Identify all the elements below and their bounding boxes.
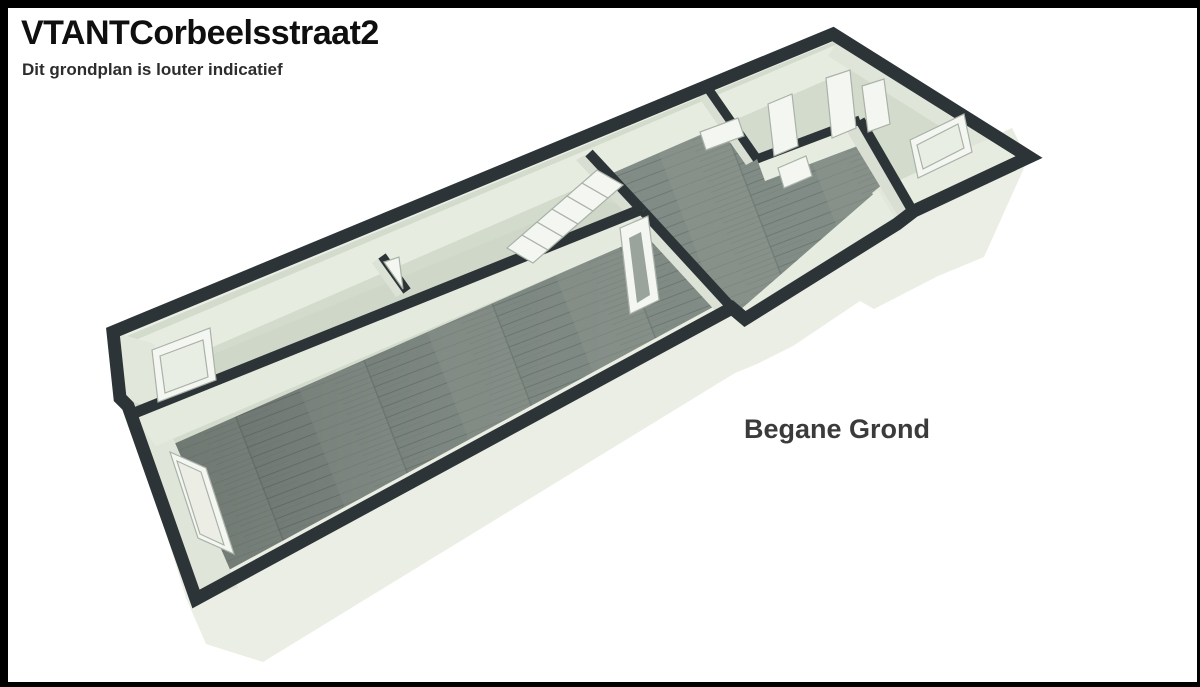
page-subtitle: Dit grondplan is louter indicatief — [22, 60, 283, 80]
floorplan-3d — [0, 0, 1200, 687]
bathroom-door-icon — [768, 94, 798, 156]
bathroom-door-icon — [826, 70, 856, 138]
flyer-page: VTANTCorbeelsstraat2 Dit grondplan is lo… — [0, 0, 1200, 687]
page-title: VTANTCorbeelsstraat2 — [21, 14, 379, 53]
floor-label: Begane Grond — [744, 414, 930, 445]
